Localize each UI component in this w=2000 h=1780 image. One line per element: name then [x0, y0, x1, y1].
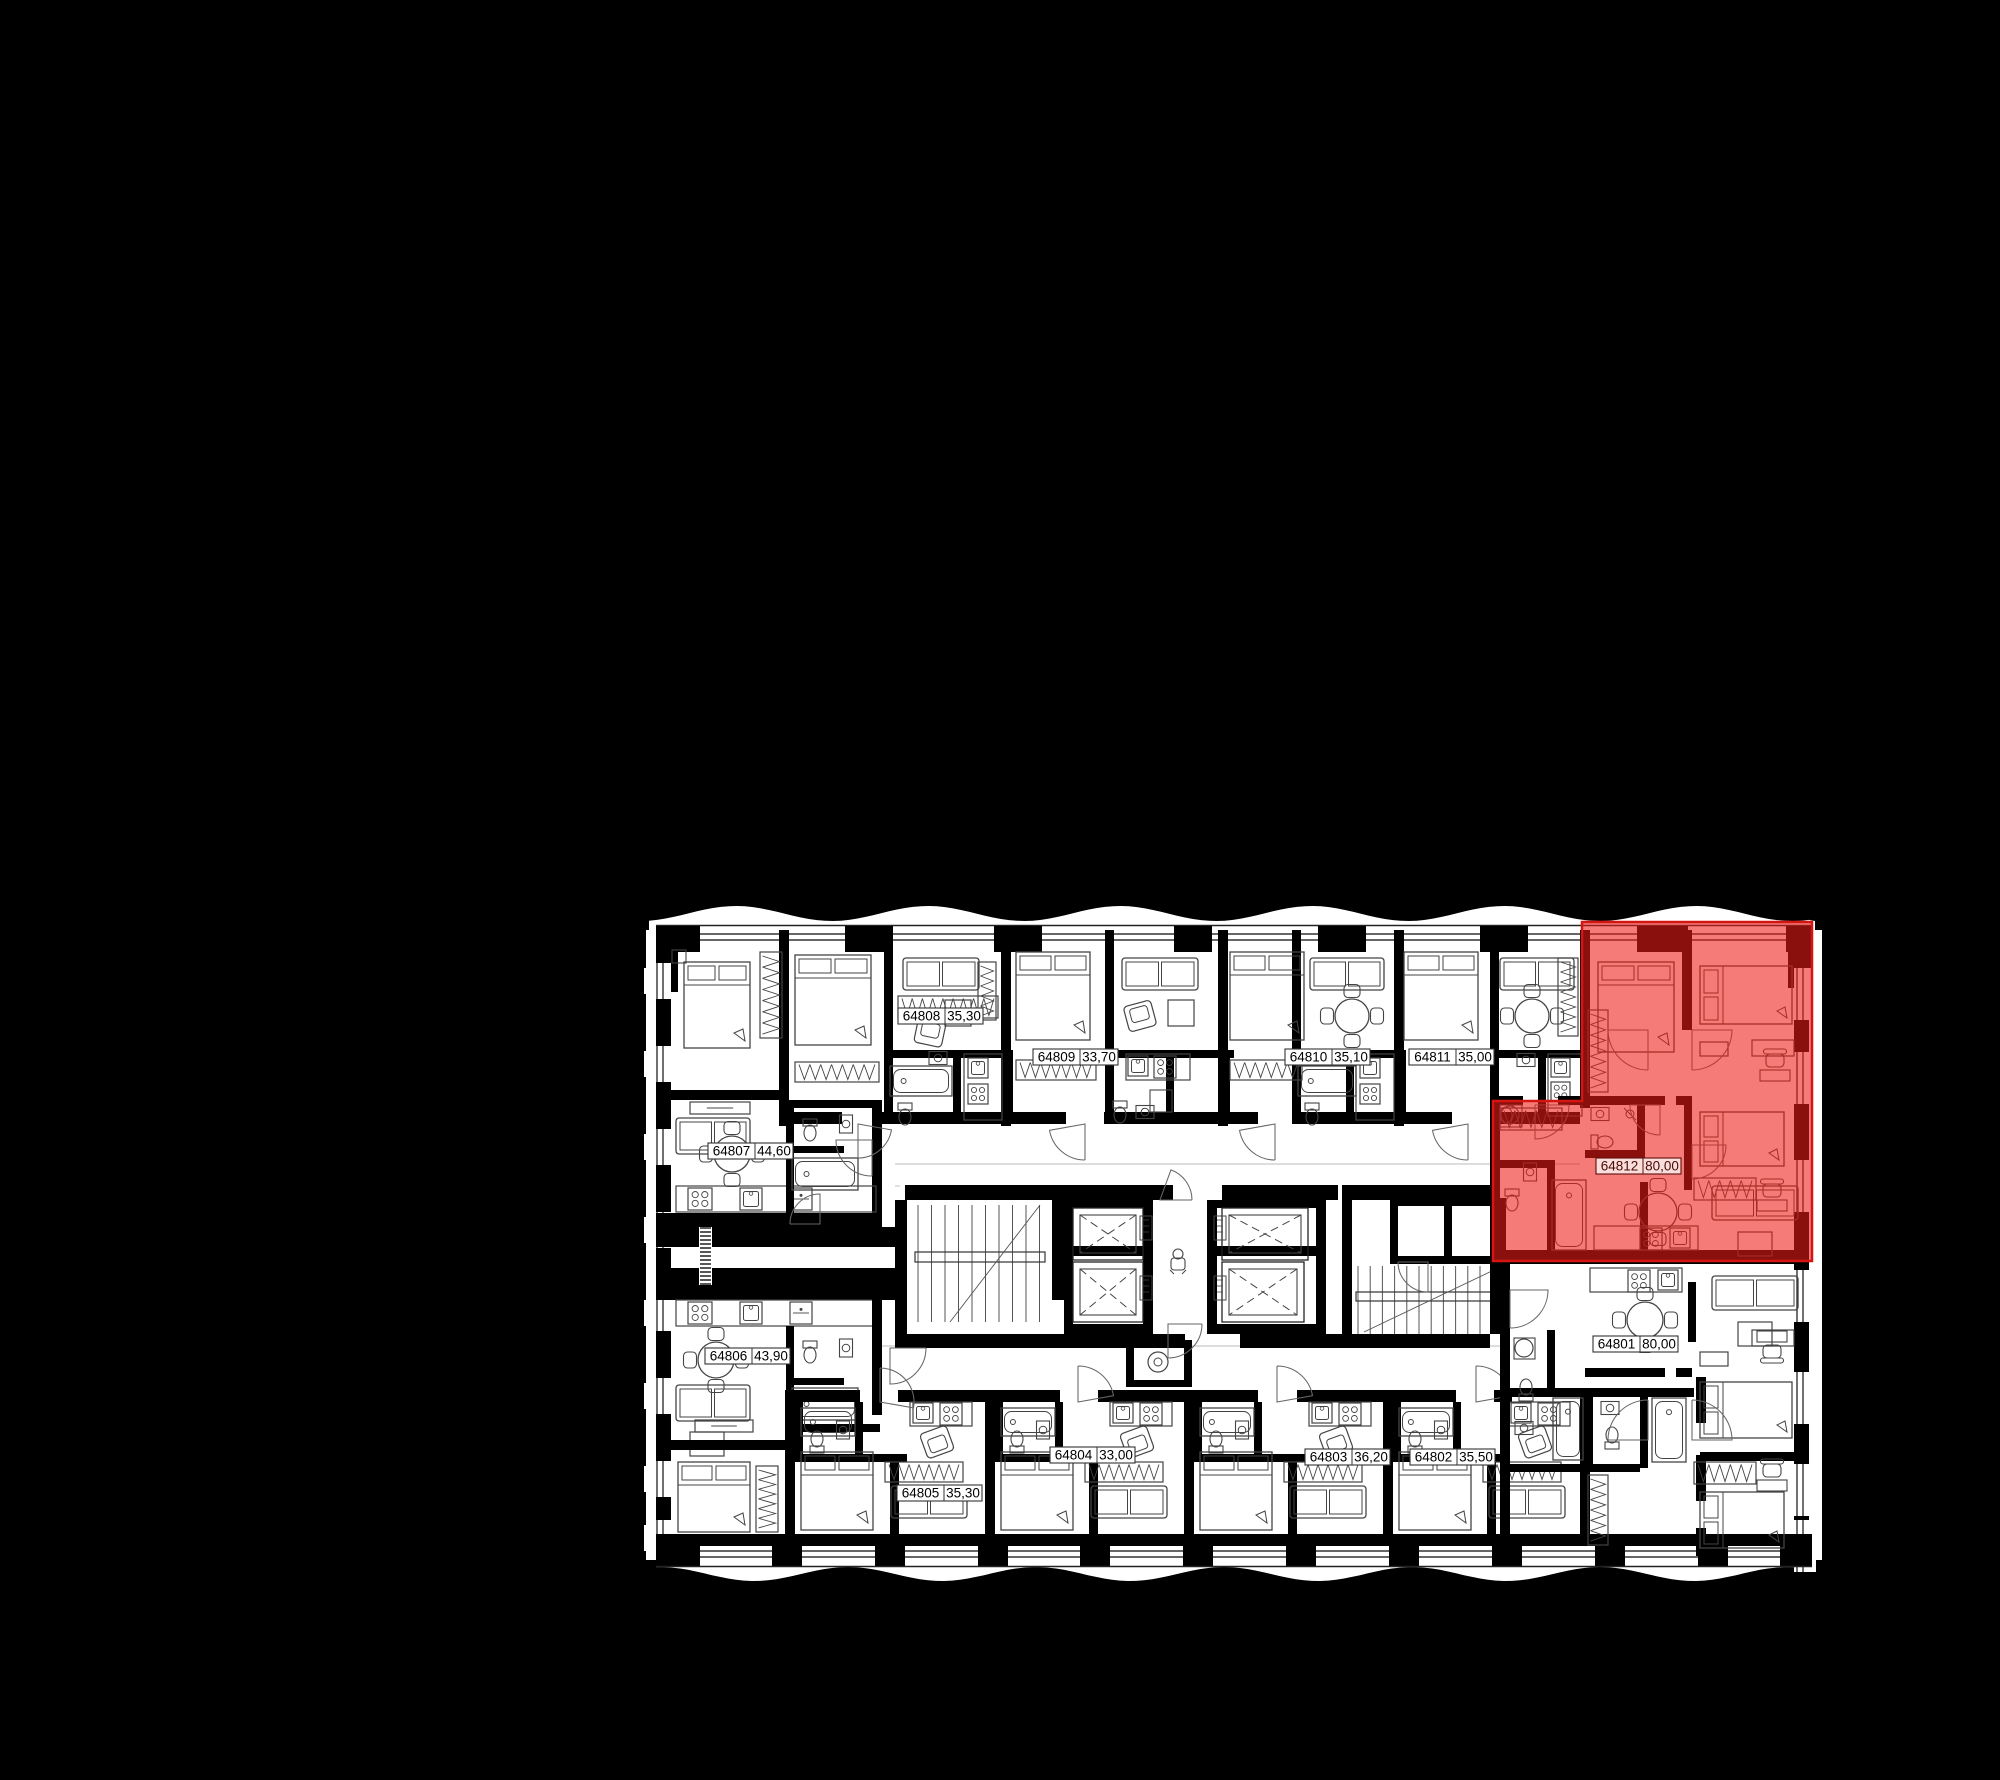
- svg-text:64801: 64801: [1598, 1337, 1636, 1352]
- svg-text:64808: 64808: [903, 1009, 941, 1024]
- svg-text:64803: 64803: [1310, 1450, 1348, 1465]
- svg-text:64806: 64806: [710, 1349, 748, 1364]
- svg-text:80,00: 80,00: [1645, 1159, 1679, 1174]
- svg-text:64811: 64811: [1414, 1050, 1451, 1065]
- svg-text:64802: 64802: [1415, 1450, 1453, 1465]
- svg-text:33,00: 33,00: [1099, 1448, 1133, 1463]
- svg-text:80,00: 80,00: [1642, 1337, 1676, 1352]
- svg-text:44,60: 44,60: [757, 1144, 791, 1159]
- svg-text:43,90: 43,90: [754, 1349, 788, 1364]
- svg-text:64810: 64810: [1290, 1050, 1328, 1065]
- svg-text:64807: 64807: [713, 1144, 751, 1159]
- svg-text:64804: 64804: [1055, 1448, 1093, 1463]
- svg-text:35,30: 35,30: [946, 1486, 980, 1501]
- svg-text:64809: 64809: [1038, 1050, 1076, 1065]
- svg-text:33,70: 33,70: [1082, 1050, 1116, 1065]
- svg-text:36,20: 36,20: [1354, 1450, 1388, 1465]
- svg-text:35,30: 35,30: [947, 1009, 981, 1024]
- svg-text:35,50: 35,50: [1459, 1450, 1493, 1465]
- svg-text:35,10: 35,10: [1334, 1050, 1368, 1065]
- svg-text:35,00: 35,00: [1458, 1050, 1492, 1065]
- svg-text:64805: 64805: [902, 1486, 940, 1501]
- svg-text:64812: 64812: [1601, 1159, 1639, 1174]
